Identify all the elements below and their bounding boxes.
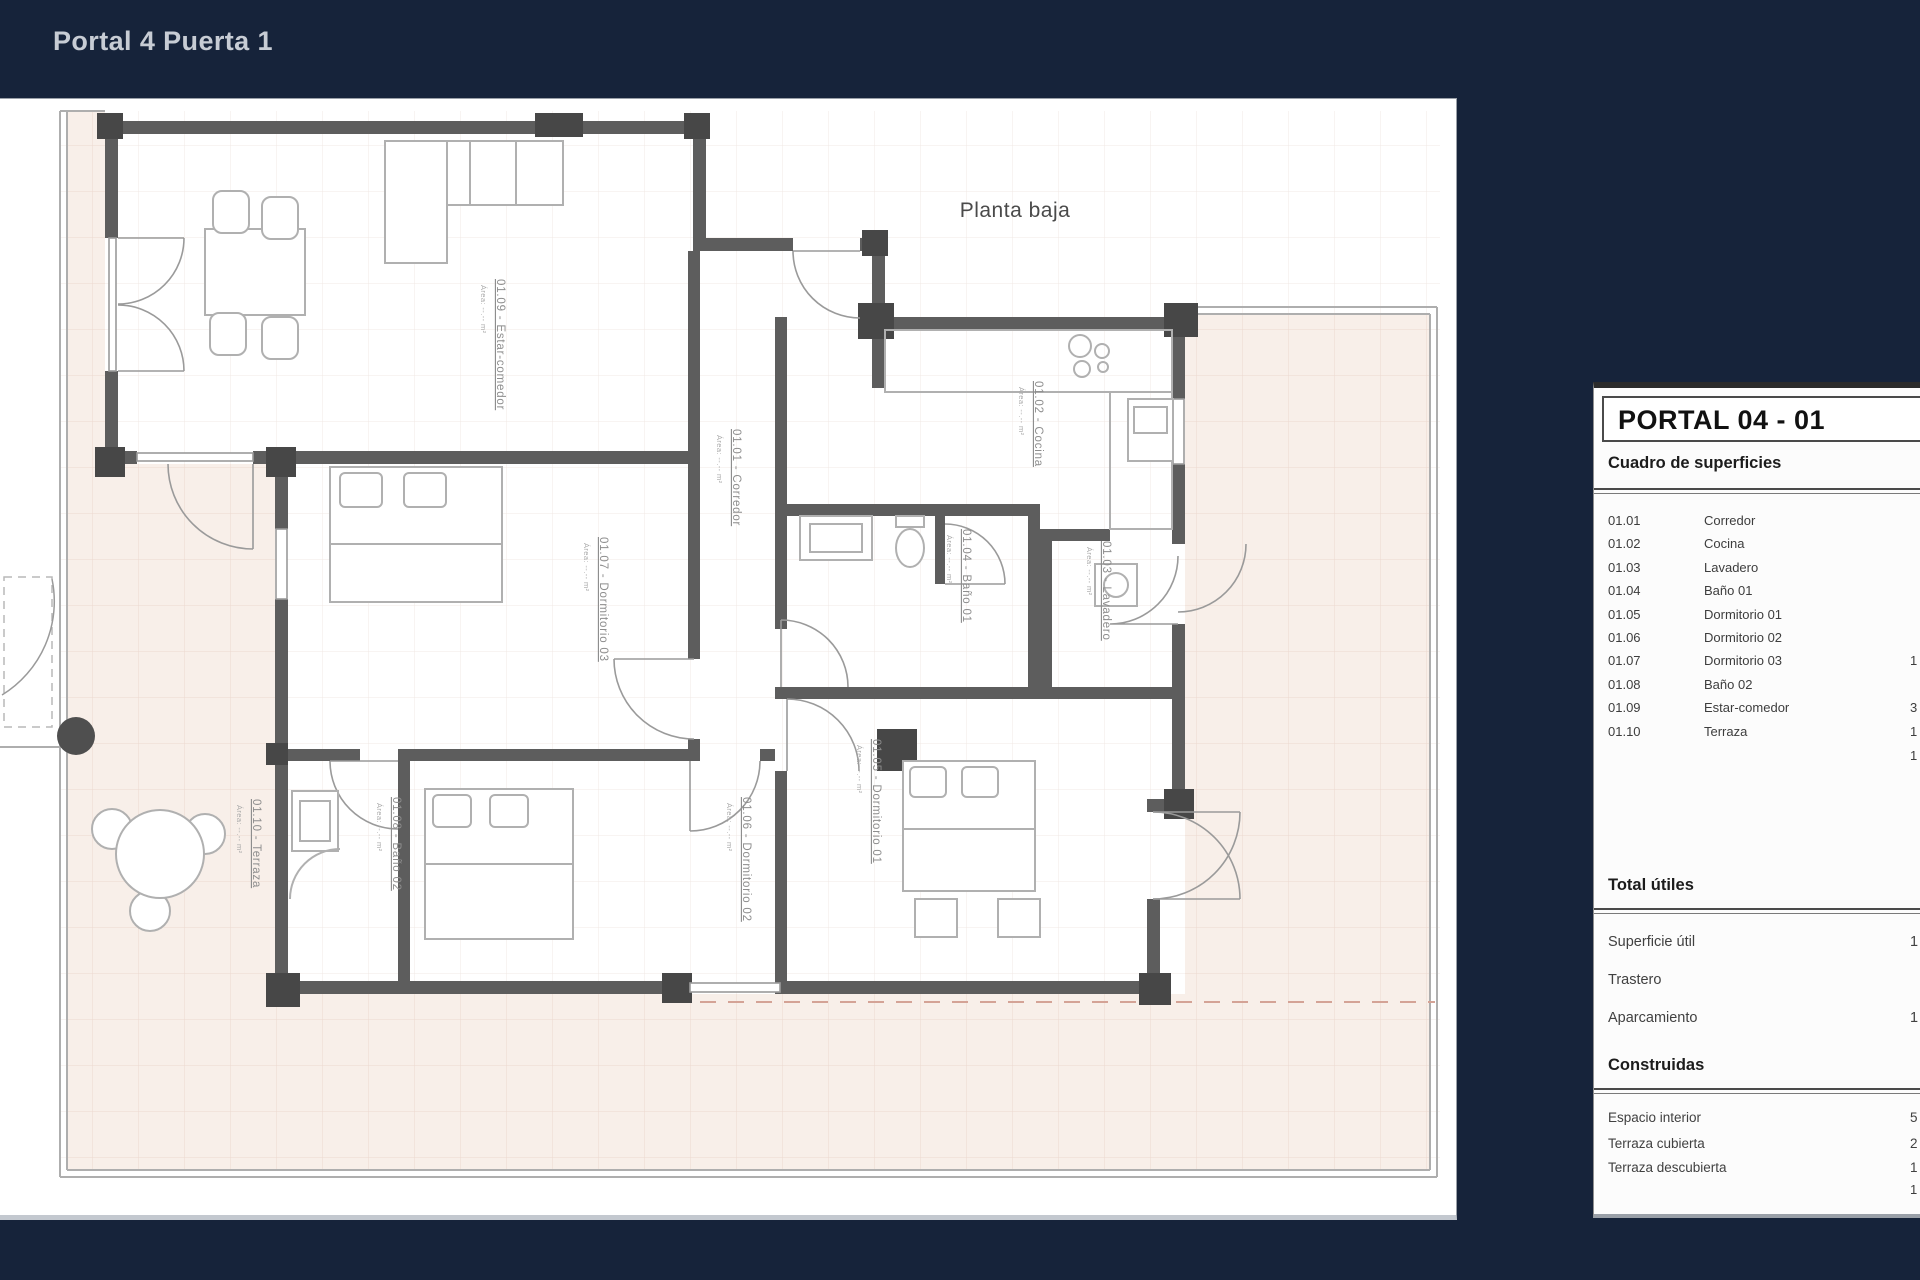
table-row: 01.05Dormitorio 01 bbox=[1594, 604, 1920, 627]
table-row: 01.04Baño 01 bbox=[1594, 580, 1920, 603]
svg-text:Área: --.-- m²: Área: --.-- m² bbox=[582, 543, 591, 592]
rooms-total-partial: 1 bbox=[1910, 748, 1917, 763]
svg-text:Área: --.-- m²: Área: --.-- m² bbox=[945, 535, 954, 584]
svg-text:Área: --.-- m²: Área: --.-- m² bbox=[725, 803, 734, 852]
terrace-column bbox=[57, 717, 95, 755]
svg-text:Área: --.-- m²: Área: --.-- m² bbox=[855, 745, 864, 794]
room-label-bano-02: 01.08 - Baño 02 bbox=[390, 797, 402, 891]
floor-plan-panel: 01.09 - Estar-comedor Área: --.-- m² 01.… bbox=[0, 98, 1457, 1220]
room-label-estar-comedor: 01.09 - Estar-comedor bbox=[494, 279, 506, 410]
table-row: 01.02Cocina bbox=[1594, 533, 1920, 556]
bed-dormitorio2 bbox=[425, 789, 573, 939]
divider bbox=[1594, 488, 1920, 494]
surfaces-panel-title: PORTAL 04 - 01 bbox=[1602, 396, 1920, 442]
room-label-corredor: 01.01 - Corredor bbox=[730, 429, 742, 526]
room-label-terraza: 01.10 - Terraza bbox=[250, 799, 262, 888]
table-row: 01.07Dormitorio 031 bbox=[1594, 650, 1920, 673]
svg-text:Área: --.-- m²: Área: --.-- m² bbox=[479, 285, 488, 334]
svg-text:Área: --.-- m²: Área: --.-- m² bbox=[715, 435, 724, 484]
surfaces-rows: 01.01Corredor 01.02Cocina 01.03Lavadero … bbox=[1594, 510, 1920, 744]
surfaces-subtitle: Cuadro de superficies bbox=[1608, 454, 1781, 473]
svg-text:Área: --.-- m²: Área: --.-- m² bbox=[1017, 387, 1026, 436]
svg-text:Área: --.-- m²: Área: --.-- m² bbox=[235, 805, 244, 854]
page-title: Portal 4 Puerta 1 bbox=[53, 26, 273, 57]
table-row: 01.10Terraza1 bbox=[1594, 721, 1920, 744]
construidas-total-partial: 1 bbox=[1910, 1182, 1917, 1197]
room-label-bano-01: 01.04 - Baño 01 bbox=[960, 529, 972, 623]
svg-text:Área: --.-- m²: Área: --.-- m² bbox=[375, 803, 384, 852]
table-row: 01.06Dormitorio 02 bbox=[1594, 627, 1920, 650]
room-label-dormitorio-02: 01.06 - Dormitorio 02 bbox=[740, 797, 752, 922]
table-row: 01.01Corredor bbox=[1594, 510, 1920, 533]
surfaces-panel: PORTAL 04 - 01 Cuadro de superficies 01.… bbox=[1593, 382, 1920, 1218]
bathroom1-fixtures bbox=[800, 516, 924, 567]
room-label-dormitorio-01: 01.05 - Dormitorio 01 bbox=[870, 739, 882, 864]
divider bbox=[1594, 1088, 1920, 1094]
room-label-cocina: 01.02 - Cocina bbox=[1032, 381, 1044, 467]
bed-dormitorio3 bbox=[330, 467, 502, 602]
svg-text:Área: --.-- m²: Área: --.-- m² bbox=[1085, 547, 1094, 596]
divider bbox=[1594, 908, 1920, 914]
page: { "page": { "title": "Portal 4 Puerta 1"… bbox=[0, 0, 1920, 1280]
total-utiles-heading: Total útiles bbox=[1608, 876, 1694, 895]
plan-caption: Planta baja bbox=[960, 199, 1071, 222]
room-label-dormitorio-03: 01.07 - Dormitorio 03 bbox=[597, 537, 609, 662]
table-row: 01.08Baño 02 bbox=[1594, 674, 1920, 697]
table-row: 01.09Estar-comedor3 bbox=[1594, 697, 1920, 720]
table-row: 01.03Lavadero bbox=[1594, 557, 1920, 580]
room-label-lavadero: 01.03 - Lavadero bbox=[1100, 541, 1112, 641]
floor-plan: 01.09 - Estar-comedor Área: --.-- m² 01.… bbox=[0, 99, 1456, 1210]
construidas-heading: Construidas bbox=[1608, 1056, 1704, 1075]
